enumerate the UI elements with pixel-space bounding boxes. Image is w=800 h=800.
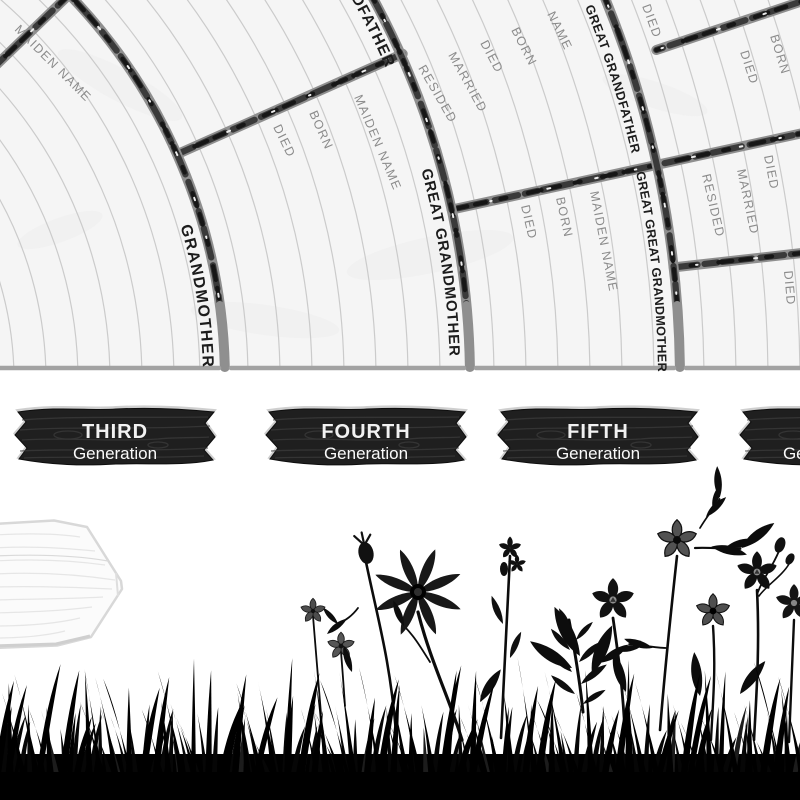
rose-leaf-branch — [675, 463, 743, 530]
plaque-subtitle: Generation — [556, 444, 640, 463]
poster-canvas: MAIDEN NAMEMAIDEN NAMEBORNDIEDNAMEBORNDI… — [0, 0, 800, 800]
genealogy-poster: MAIDEN NAMEMAIDEN NAMEBORNDIEDNAMEBORNDI… — [0, 0, 800, 800]
wooden-arrow-sign — [0, 521, 122, 649]
wild-rose-flower — [695, 594, 730, 628]
plaque-third-generation: THIRD Generation — [15, 407, 215, 465]
wild-rose-flower — [656, 520, 697, 559]
plaque-subtitle: Generation — [783, 444, 800, 463]
plaque-fourth-generation: FOURTH Generation — [266, 407, 466, 465]
fan-chart: MAIDEN NAMEMAIDEN NAMEBORNDIEDNAMEBORNDI… — [0, 0, 800, 372]
plaque-subtitle: Generation — [324, 444, 408, 463]
pansy-flower — [775, 584, 800, 621]
plaque-title: FIFTH — [567, 421, 629, 443]
flower-bud — [773, 536, 788, 554]
flower-bud — [354, 531, 376, 566]
flower-bud — [784, 552, 797, 566]
generation-plaques: THIRD Generation FOURTH Generation FIFTH… — [15, 407, 800, 465]
cosmos-flower — [374, 548, 463, 637]
pansy-flower — [736, 551, 778, 591]
plaque-fifth-generation: FIFTH Generation — [498, 407, 698, 465]
grass-silhouette — [0, 657, 800, 800]
plaque-title: FOURTH — [321, 421, 410, 443]
plaque-subtitle: Generation — [73, 444, 157, 463]
pansy-flower — [591, 578, 636, 621]
plaque-sixth-generation-partial: Generation — [740, 407, 800, 465]
plaque-title: THIRD — [82, 421, 148, 443]
rose-leaf-branch — [694, 500, 776, 569]
